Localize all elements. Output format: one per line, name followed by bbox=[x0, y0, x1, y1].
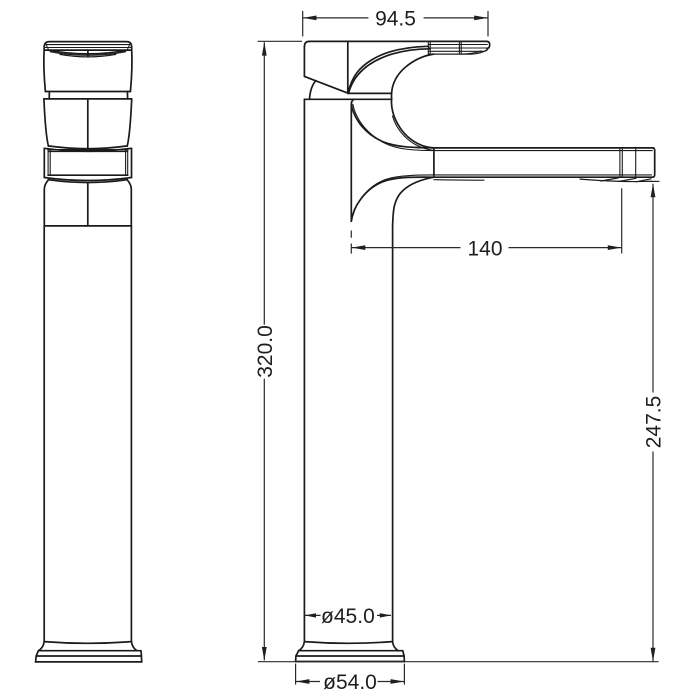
svg-text:ø45.0: ø45.0 bbox=[321, 605, 375, 628]
svg-text:140: 140 bbox=[467, 237, 502, 260]
svg-text:ø54.0: ø54.0 bbox=[323, 671, 377, 694]
svg-text:94.5: 94.5 bbox=[375, 8, 416, 31]
svg-text:320.0: 320.0 bbox=[254, 325, 277, 378]
svg-text:247.5: 247.5 bbox=[643, 396, 666, 449]
